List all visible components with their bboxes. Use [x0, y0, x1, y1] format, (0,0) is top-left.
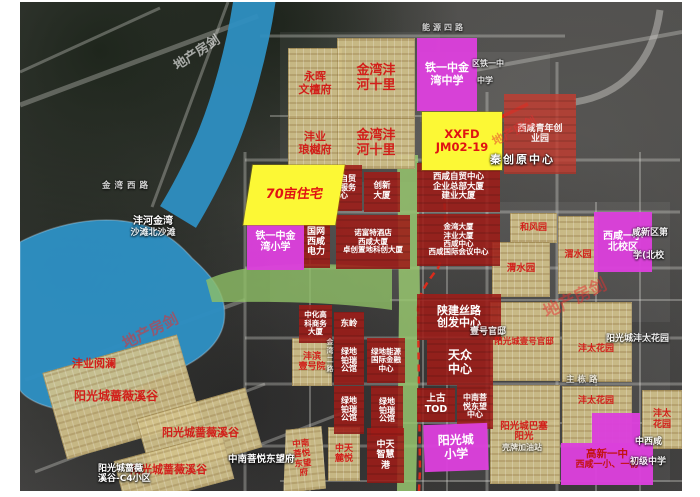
label: 中心	[448, 363, 472, 376]
block-lvdi-borui-1: 绿地铂瑞公馆	[334, 337, 364, 385]
block-chuangxin-tower: 创新大厦	[364, 172, 400, 212]
parcel-jinwan-shili-north: 金湾沣河十里	[337, 38, 415, 119]
label: 渭水园	[564, 250, 591, 260]
block-lvdi-energy-center: 绿地能源国际金融中心	[367, 338, 405, 383]
block-dongling: 东岭	[334, 312, 364, 337]
label: 花园	[653, 420, 671, 430]
school-yangguangcheng-primary: 阳光城小学	[423, 423, 489, 472]
label: 建业大厦	[441, 192, 475, 202]
label: 和风园	[520, 223, 547, 233]
label: 公馆	[341, 365, 357, 374]
block-shanggu-tod: 上古TOD	[417, 388, 455, 422]
label-tieyi-bg-1: 区铁一中	[472, 59, 504, 68]
label: 麓悦	[335, 454, 353, 464]
label: 电力	[307, 247, 325, 257]
label-fengye-yuelan: 沣业阅澜	[72, 358, 116, 370]
label: 港	[381, 461, 390, 471]
label: 渭水园	[507, 264, 536, 275]
block-jinwan-towers: 金湾大厦沣业大厦西咸中心西咸国际会议中心	[417, 214, 500, 266]
label-qiangwei-1: 阳光城蔷薇溪谷	[74, 390, 158, 403]
label: 沙滩北沙滩	[108, 228, 198, 238]
label-yihao-guandi-bg: 壹号官邸	[470, 327, 506, 337]
label: 金湾沣	[356, 64, 395, 79]
label-zhongnan-dongwangfu-bg: 中南菩悦东望府	[228, 455, 295, 466]
label: 西咸青年创	[517, 124, 562, 134]
label: 河十里	[356, 144, 395, 159]
label-c4-community: 阳光城蔷薇 溪谷-C4小区	[98, 464, 151, 485]
label: 西咸	[307, 237, 325, 247]
road-label-jinwan-xilu: 金湾西路	[102, 182, 152, 192]
map-screenshot: 永晖文檀府 金湾沣河十里 沣业琅樾府 金湾沣河十里 和风园 渭水园 渭水园 沣滨…	[0, 0, 700, 497]
label: 西咸国际会议中心	[429, 248, 489, 256]
parcel-weishuiyuan-west: 渭水园	[492, 242, 550, 297]
label: 阳光城	[438, 433, 474, 448]
label-chuji-middle-school: 初级中学	[630, 457, 666, 467]
label: 中心	[467, 411, 483, 420]
label: 中天	[376, 440, 394, 450]
label: 东岭	[340, 320, 357, 330]
parcel-fengye-langyue: 沣业琅樾府	[288, 118, 342, 169]
label-fengtai-bg: 阳光城沣太花园	[606, 334, 669, 344]
interchange-ramp	[575, 10, 660, 102]
label-yihao-guandi: 阳光城壹号官邸	[490, 338, 558, 347]
parcel-yonghui-wentanfu: 永晖文檀府	[288, 48, 342, 119]
block-zhongtian-zhihuigang: 中天智慧港	[367, 428, 404, 483]
school-tieyi-middle: 铁一中金湾中学	[417, 38, 477, 111]
label: 天众	[448, 349, 472, 362]
label: TOD	[425, 405, 447, 416]
label: 文檀府	[299, 84, 332, 96]
label: 永晖	[304, 71, 326, 83]
label: 壹号院	[298, 362, 325, 372]
label-qiangwei-2: 阳光城蔷薇溪谷	[162, 427, 239, 439]
label: 琅樾府	[299, 144, 332, 156]
label: 金湾沣	[356, 129, 395, 144]
label: 大厦	[373, 192, 390, 202]
label: 卓创置地科创大厦	[343, 246, 403, 254]
label: 中天	[335, 444, 353, 454]
block-tianzhong-center: 天众中心	[427, 340, 493, 385]
label-tieyi-bg-2: 中学	[477, 76, 493, 85]
parcel-jinwan-shili-south: 金湾沣河十里	[337, 118, 415, 169]
road-label-nengyuan-silu: 能源四路	[422, 23, 466, 32]
label: 阳光	[490, 432, 558, 442]
parcel-weishuiyuan-east: 渭水园	[558, 216, 598, 294]
label: 府	[299, 469, 308, 479]
label: 国网	[307, 227, 325, 237]
school-xixian-yixiao-north: 西咸一小北校区	[594, 212, 652, 272]
block-lvdi-borui-2: 绿地铂瑞公馆	[334, 386, 364, 434]
label: 沣太	[653, 409, 671, 419]
label: 铁一中金	[256, 231, 296, 242]
label: 沣滨	[303, 352, 321, 362]
label: 溪谷-C4小区	[98, 474, 151, 484]
label: 沣业	[304, 131, 326, 143]
label: 智慧	[376, 450, 394, 460]
label: 湾小学	[261, 242, 291, 253]
label-xianxin-fragment-1: 咸新区第	[632, 228, 668, 238]
parcel-zhongtian-luyue: 中天麓悦	[328, 427, 360, 481]
label: 70亩住宅	[264, 188, 323, 203]
label-zhongxixian: 中西咸	[635, 437, 662, 447]
parcel-hefengyuan: 和风园	[510, 213, 557, 243]
road-label-zhudong: 主栋路	[566, 376, 601, 386]
block-zimao-headquarters: 西咸自贸中心企业总部大厦建业大厦	[417, 163, 500, 212]
label: 大厦	[308, 328, 323, 336]
label-fengtai-1: 沣太花园	[562, 345, 630, 355]
block-nuofute-hotel: 诺富特酒店西咸大厦卓创置地科创大厦	[336, 215, 410, 269]
label-basai: 阳光城巴塞阳光	[490, 422, 558, 443]
label: 河十里	[356, 79, 395, 94]
label-xianxin-fragment-2: 学(北校	[633, 251, 664, 261]
label: 中心	[379, 365, 394, 373]
plot-70mu-residential: 70亩住宅	[243, 165, 345, 225]
label: 公馆	[341, 414, 357, 423]
label-shell-station: 壳牌加油站	[502, 443, 542, 452]
label-qinchuangyuan-center: 秦创原中心	[490, 154, 555, 167]
satellite-map: 永晖文檀府 金湾沣河十里 沣业琅樾府 金湾沣河十里 和风园 渭水园 渭水园 沣滨…	[20, 2, 682, 491]
label: 小学	[444, 447, 468, 461]
road-label-jinwan-erlu: 金湾二路	[326, 338, 334, 374]
lake-name-label: 沣河金湾 沙滩北沙滩	[108, 216, 198, 238]
label: JM02-19	[436, 141, 489, 154]
label: 沣河金湾	[108, 216, 198, 228]
label: 公馆	[379, 415, 395, 424]
label-fengtai-2: 沣太花园	[562, 397, 630, 407]
label: 湾中学	[431, 75, 464, 87]
label: 铁一中金	[425, 62, 469, 74]
label: 业园	[531, 134, 549, 144]
label: 阳光城蔷薇	[98, 464, 151, 474]
